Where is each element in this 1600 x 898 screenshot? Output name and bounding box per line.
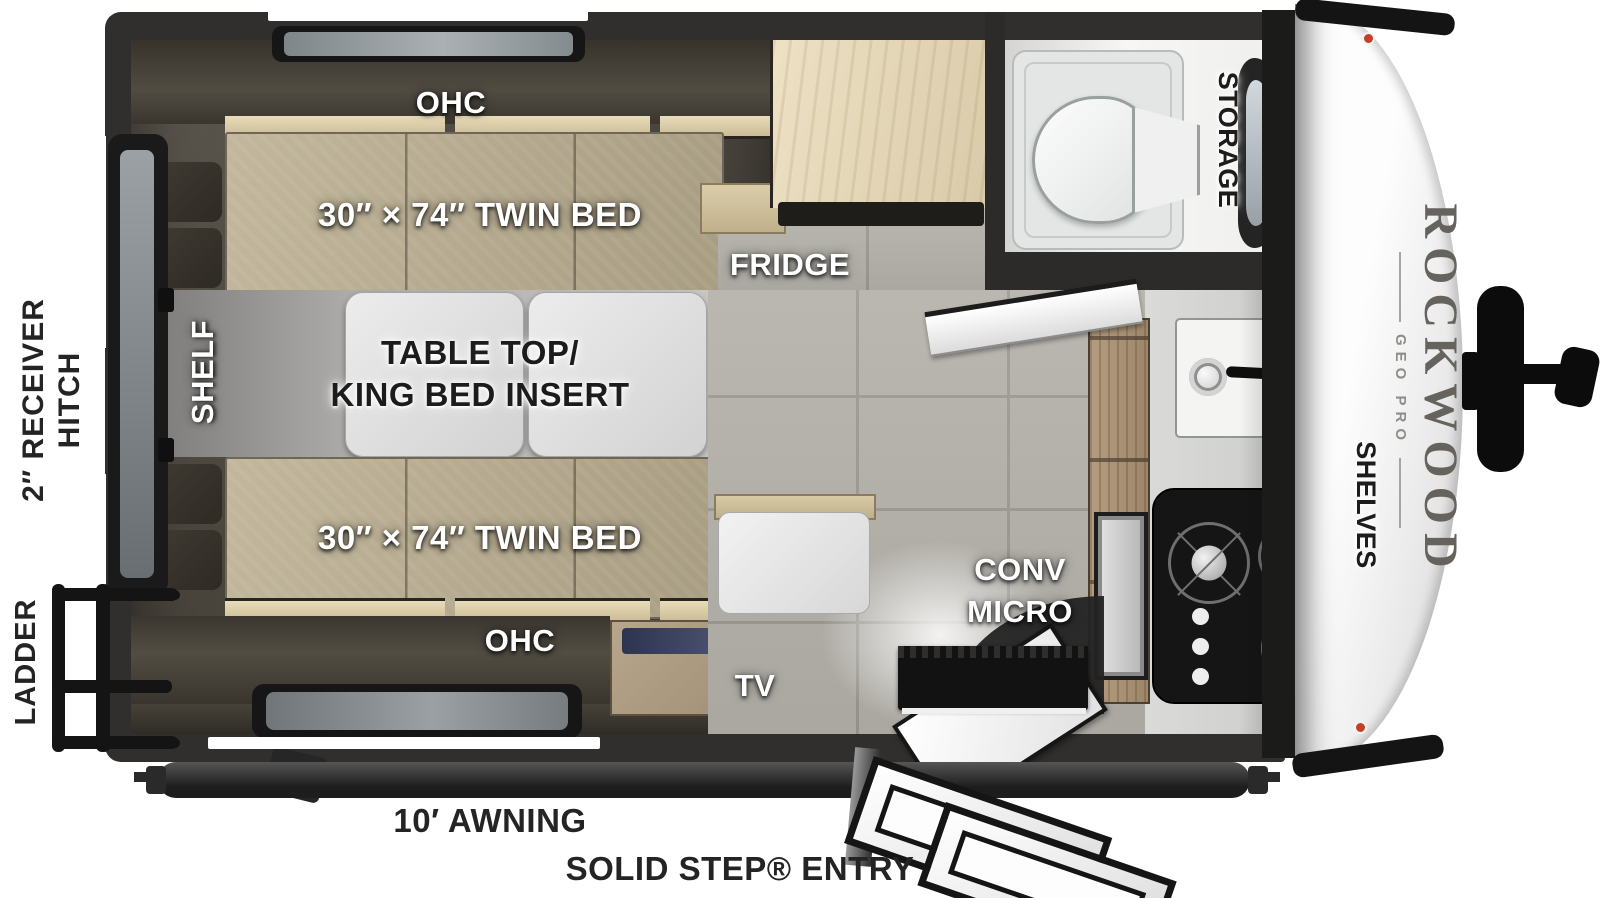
- label-conv-line2: MICRO: [967, 591, 1073, 633]
- rear-window-exterior-strip: [94, 474, 106, 594]
- nightstand-cabinet: [718, 512, 870, 614]
- tongue-jack-mount: [1462, 352, 1479, 410]
- label-solid-step-entry: SOLID STEP® ENTRY: [555, 847, 925, 891]
- step-tread: [948, 830, 1146, 898]
- top-wall-window-glass: [284, 32, 573, 56]
- awning-pin-left: [134, 772, 148, 782]
- brand-name: ROCKWOOD: [1413, 203, 1468, 576]
- label-receiver-hitch-line1: 2″ RECEIVER: [16, 298, 52, 502]
- label-conv-line1: CONV: [974, 549, 1066, 591]
- label-fridge: FRIDGE: [720, 246, 860, 284]
- brand-sub-row: GEO PRO: [1392, 252, 1409, 528]
- bottom-exterior-window-strip: [208, 737, 600, 749]
- brand-rule-right: [1400, 458, 1402, 528]
- awning-roll: [158, 762, 1250, 798]
- stove-knob: [1192, 668, 1209, 685]
- marker-light: [1362, 32, 1375, 45]
- label-awning: 10′ AWNING: [330, 799, 650, 843]
- label-receiver-hitch-line2: HITCH: [52, 352, 88, 449]
- brand-rule-left: [1400, 252, 1402, 322]
- label-table-line1: TABLE TOP/: [381, 332, 579, 374]
- label-ladder: LADDER: [9, 592, 43, 732]
- label-ohc-top: OHC: [411, 86, 491, 120]
- fridge-cabinet: [770, 40, 991, 208]
- label-table-line2: KING BED INSERT: [330, 374, 629, 416]
- ladder-rail: [52, 584, 65, 752]
- ladder-hook: [110, 590, 180, 600]
- stove-burner-large: [1168, 522, 1250, 604]
- fridge-cabinet-base: [778, 202, 984, 226]
- microwave-vents: [898, 646, 1088, 658]
- rear-window-exterior-strip: [94, 136, 106, 348]
- marker-light: [1354, 721, 1367, 734]
- stove-knob: [1192, 608, 1209, 625]
- rear-window-glass: [120, 150, 154, 578]
- brand-sub: GEO PRO: [1392, 334, 1409, 446]
- window-clasp: [158, 438, 174, 462]
- window-clasp: [158, 288, 174, 312]
- label-receiver-hitch: 2″ RECEIVER HITCH: [14, 245, 90, 555]
- faucet-base: [1189, 358, 1227, 396]
- label-conv-micro: CONV MICRO: [940, 548, 1100, 634]
- bottom-wall-window-glass: [266, 692, 568, 730]
- top-exterior-window-strip: [268, 10, 588, 21]
- ladder-rail: [96, 584, 110, 752]
- awning-endcap-left: [146, 766, 166, 794]
- counter-edge-highlight: [902, 708, 1086, 714]
- stove-knob: [1192, 638, 1209, 655]
- label-twin-bed-bottom: 30″ × 74″ TWIN BED: [260, 518, 700, 558]
- label-twin-bed-top: 30″ × 74″ TWIN BED: [260, 195, 700, 235]
- label-storage: STORAGE: [1208, 80, 1248, 200]
- label-tv: TV: [715, 668, 795, 704]
- tongue-jack-wheel: [1552, 345, 1600, 410]
- bathroom-wall-left: [985, 12, 1005, 290]
- ladder-hook: [110, 738, 180, 748]
- floorplan-canvas: ROCKWOOD GEO PRO OHC 30″ × 74″ TWIN BED …: [0, 0, 1600, 898]
- awning-endcap-right: [1248, 766, 1268, 794]
- ladder-rung: [52, 680, 172, 693]
- label-table-king-insert: TABLE TOP/ KING BED INSERT: [300, 328, 660, 420]
- label-ohc-bottom: OHC: [480, 624, 560, 658]
- awning-pin-right: [1266, 772, 1280, 782]
- burner-cap: [1192, 546, 1227, 581]
- label-shelf: SHELF: [183, 292, 223, 452]
- label-shelves: SHELVES: [1346, 445, 1386, 565]
- tongue-jack-head: [1477, 286, 1524, 472]
- brand-logo: ROCKWOOD GEO PRO: [1390, 175, 1470, 605]
